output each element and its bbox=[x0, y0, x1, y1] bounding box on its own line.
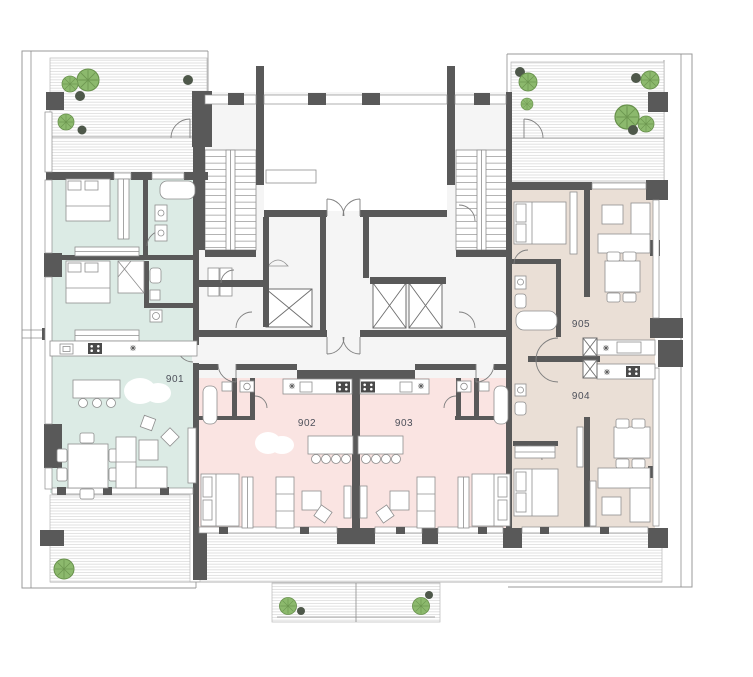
bush-icon bbox=[297, 607, 305, 615]
tree-icon bbox=[54, 559, 74, 579]
stair-east bbox=[456, 150, 507, 250]
bed-901-1 bbox=[66, 179, 110, 221]
bush-icon bbox=[78, 126, 87, 135]
bush-icon bbox=[425, 591, 433, 599]
bush-icon bbox=[631, 73, 641, 83]
floor-plan-canvas: 901 902 903 904 905 bbox=[0, 0, 753, 677]
sofa-902 bbox=[276, 477, 294, 528]
island-902 bbox=[308, 436, 353, 464]
unit-label-902: 902 bbox=[298, 418, 316, 429]
kitchen-903 bbox=[360, 379, 429, 394]
bed-902 bbox=[201, 474, 239, 526]
kitchen-905 bbox=[583, 338, 655, 356]
unit-label-903: 903 bbox=[395, 418, 413, 429]
tree-icon bbox=[280, 598, 297, 615]
elevator-east-2 bbox=[409, 283, 442, 328]
bed-901-2 bbox=[66, 261, 110, 303]
tree-icon bbox=[413, 598, 430, 615]
tree-icon bbox=[521, 98, 533, 110]
bush-icon bbox=[628, 125, 638, 135]
stair-west bbox=[205, 150, 256, 250]
unit-label-901: 901 bbox=[166, 374, 184, 385]
tree-icon bbox=[638, 116, 654, 132]
tree-icon bbox=[519, 73, 537, 91]
bed-905 bbox=[514, 202, 566, 244]
tree-icon bbox=[58, 114, 74, 130]
deck-top-left bbox=[50, 58, 207, 174]
bathtub-903 bbox=[494, 386, 508, 424]
unit-label-905: 905 bbox=[572, 319, 590, 330]
bathtub-905 bbox=[516, 311, 557, 330]
shower-901 bbox=[118, 261, 144, 293]
bathtub-902 bbox=[203, 386, 217, 424]
unit-label-904: 904 bbox=[572, 391, 590, 402]
tree-icon bbox=[615, 105, 639, 129]
island-903 bbox=[358, 436, 403, 464]
bed-904 bbox=[514, 469, 558, 516]
tree-icon bbox=[641, 71, 659, 89]
tree-icon bbox=[77, 69, 99, 91]
kitchen-902 bbox=[283, 379, 352, 394]
bed-903 bbox=[472, 474, 510, 526]
tree-icon bbox=[62, 76, 78, 92]
dining-904 bbox=[614, 419, 650, 468]
bush-icon bbox=[183, 75, 193, 85]
floor-plan-svg: 901 902 903 904 905 bbox=[0, 0, 753, 677]
island-901 bbox=[73, 380, 120, 408]
bathtub-901 bbox=[160, 181, 195, 199]
elevator-west bbox=[266, 289, 312, 327]
elevator-east-1 bbox=[373, 283, 406, 328]
bush-icon bbox=[75, 91, 85, 101]
sofa-903 bbox=[417, 477, 435, 528]
